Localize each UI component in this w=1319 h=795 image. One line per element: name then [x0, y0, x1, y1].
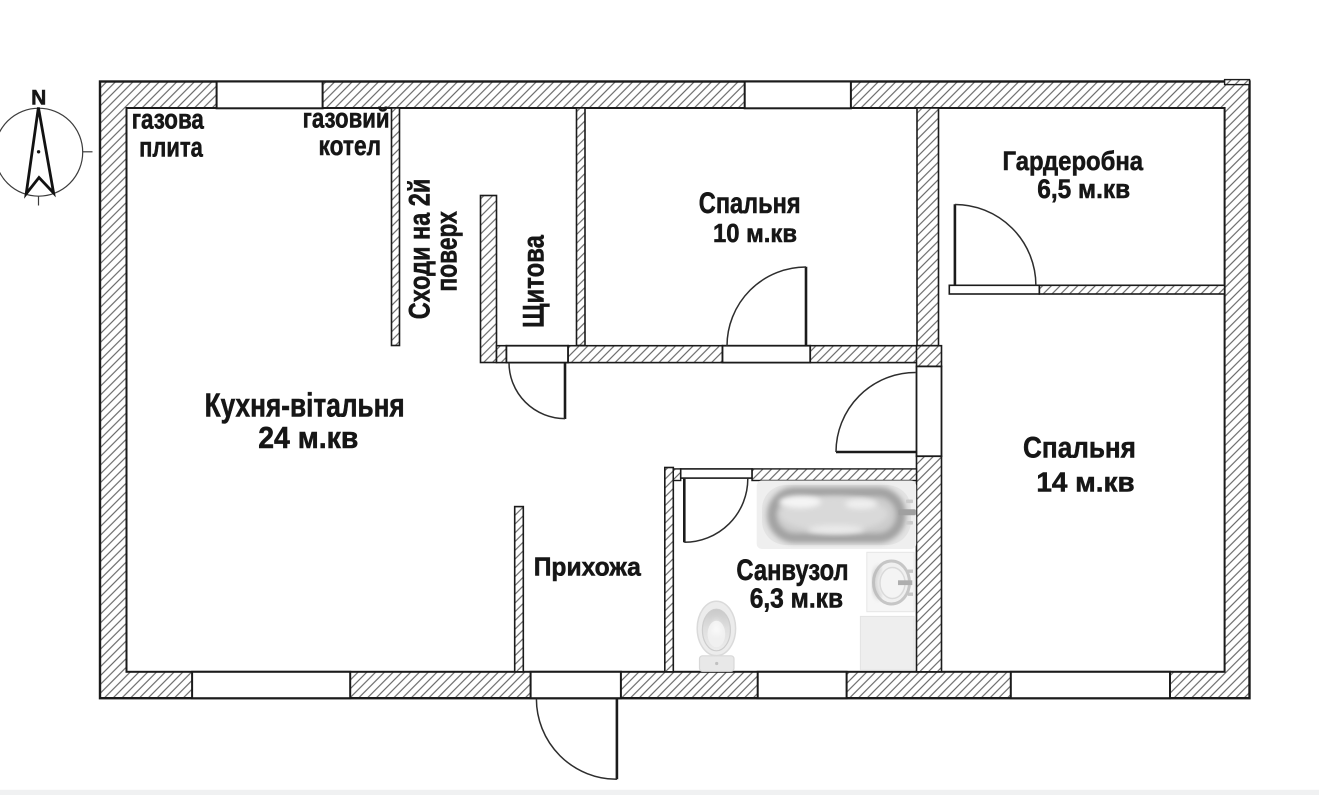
- svg-text:6,3 м.кв: 6,3 м.кв: [750, 583, 843, 614]
- svg-text:N: N: [31, 87, 46, 110]
- svg-text:Гардеробна: Гардеробна: [1003, 146, 1144, 176]
- svg-text:Кухня-вітальня: Кухня-вітальня: [205, 386, 405, 423]
- svg-text:поверх: поверх: [431, 211, 464, 292]
- svg-text:газова: газова: [132, 104, 205, 135]
- svg-text:плита: плита: [139, 131, 203, 162]
- svg-text:10 м.кв: 10 м.кв: [713, 218, 797, 248]
- svg-text:24 м.кв: 24 м.кв: [258, 420, 358, 455]
- svg-text:14 м.кв: 14 м.кв: [1036, 467, 1134, 498]
- svg-text:Щитова: Щитова: [518, 235, 551, 328]
- svg-text:Спальня: Спальня: [1023, 432, 1136, 465]
- svg-text:Прихожа: Прихожа: [534, 552, 642, 582]
- svg-text:котел: котел: [319, 130, 382, 161]
- svg-text:Спальня: Спальня: [699, 187, 801, 220]
- svg-text:6,5 м.кв: 6,5 м.кв: [1037, 174, 1130, 204]
- svg-text:газовий: газовий: [303, 103, 390, 134]
